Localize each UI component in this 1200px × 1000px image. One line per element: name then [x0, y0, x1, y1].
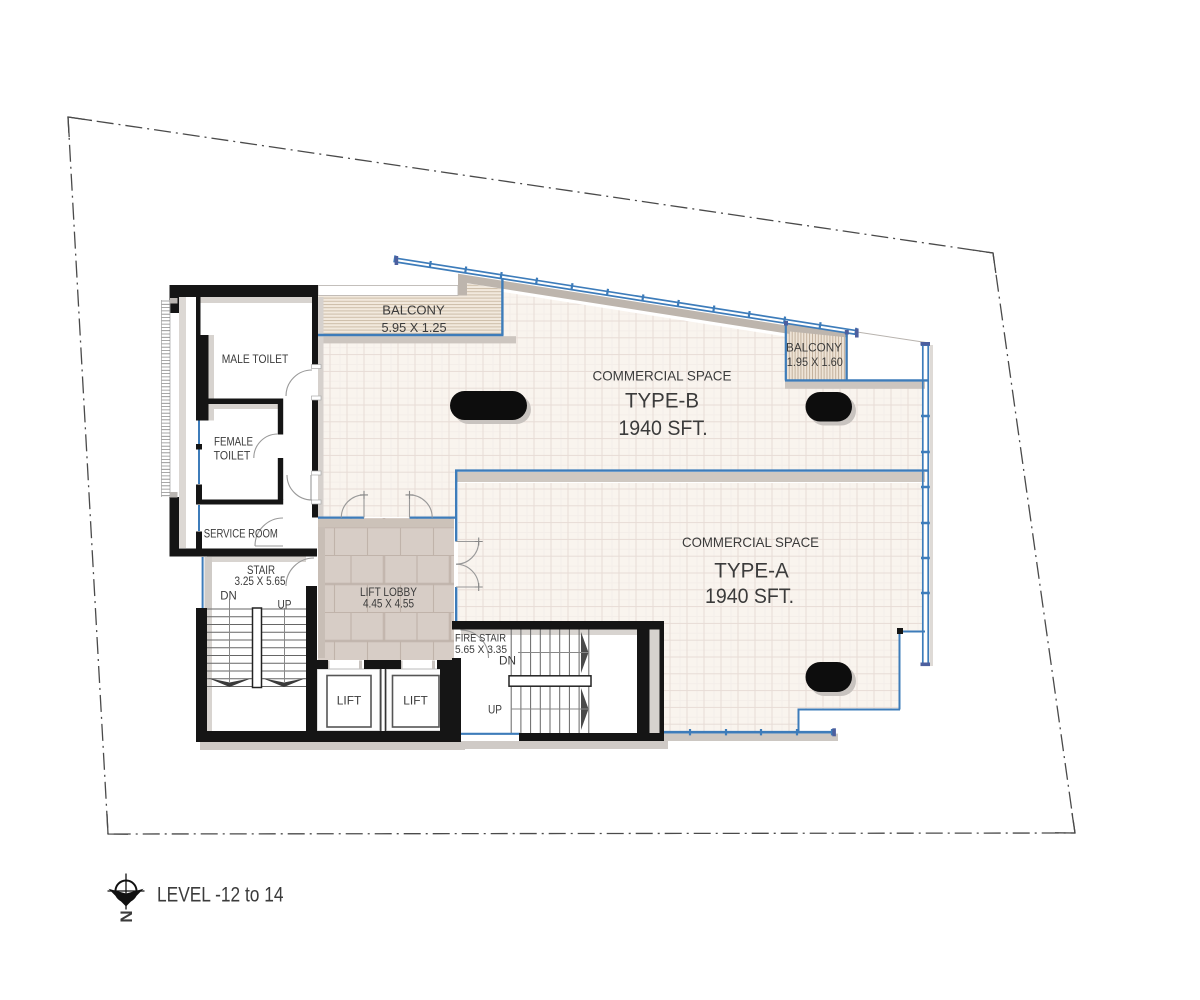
- svg-text:DN: DN: [220, 591, 237, 603]
- svg-text:1.95 X 1.60: 1.95 X 1.60: [787, 357, 843, 369]
- svg-text:SERVICE ROOM: SERVICE ROOM: [204, 529, 278, 541]
- svg-text:TOILET: TOILET: [214, 448, 251, 462]
- svg-text:FIRE STAIR: FIRE STAIR: [455, 633, 506, 645]
- svg-text:LIFT LOBBY: LIFT LOBBY: [360, 587, 417, 599]
- svg-text:COMMERCIAL SPACE: COMMERCIAL SPACE: [682, 534, 819, 550]
- svg-text:COMMERCIAL SPACE: COMMERCIAL SPACE: [593, 368, 732, 384]
- svg-text:5.65 X 3.35: 5.65 X 3.35: [455, 644, 507, 656]
- svg-text:1940 SFT.: 1940 SFT.: [705, 585, 794, 608]
- svg-text:BALCONY: BALCONY: [382, 303, 445, 318]
- svg-text:LIFT: LIFT: [337, 694, 362, 708]
- svg-text:4.45 X 4.55: 4.45 X 4.55: [363, 598, 414, 610]
- svg-text:MALE TOILET: MALE TOILET: [222, 352, 289, 366]
- svg-text:LEVEL -12 to 14: LEVEL -12 to 14: [157, 883, 284, 906]
- svg-text:UP: UP: [488, 705, 502, 717]
- svg-text:3.25 X 5.65: 3.25 X 5.65: [235, 576, 286, 588]
- svg-text:DN: DN: [499, 656, 516, 668]
- svg-text:BALCONY: BALCONY: [786, 342, 842, 354]
- svg-text:LIFT: LIFT: [403, 694, 428, 708]
- svg-text:1940 SFT.: 1940 SFT.: [618, 417, 707, 440]
- svg-text:TYPE-B: TYPE-B: [625, 390, 699, 413]
- svg-text:N: N: [117, 910, 136, 922]
- svg-text:FEMALE: FEMALE: [214, 434, 253, 448]
- svg-text:5.95 X 1.25: 5.95 X 1.25: [381, 320, 446, 335]
- svg-text:TYPE-A: TYPE-A: [714, 560, 789, 583]
- svg-text:UP: UP: [278, 600, 292, 612]
